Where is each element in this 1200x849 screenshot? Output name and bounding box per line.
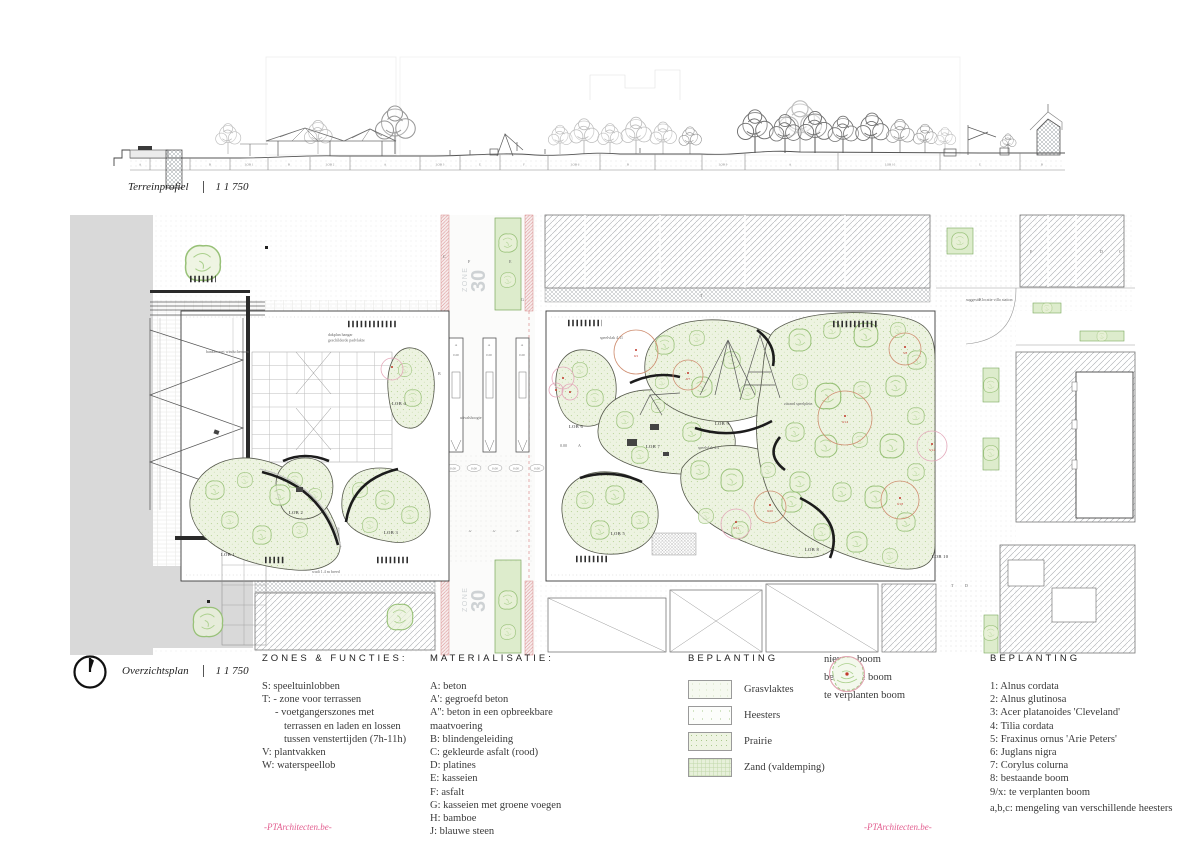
svg-text:dakplan hangar: dakplan hangar [328,332,353,337]
legend-item: H: bamboe [430,812,561,825]
svg-text:B: B [1041,163,1043,167]
legend-item: 2: Alnus glutinosa [990,693,1173,706]
svg-text:LOB 3: LOB 3 [436,163,445,167]
legend-item: terrassen en laden en lossen [262,720,407,733]
profile-title-text: Terreinprofiel [128,181,189,193]
legend-item: 9/x: te verplanten boom [990,786,1173,799]
svg-text:9/21: 9/21 [733,526,739,530]
legend-planting2-title: BEPLANTING [990,653,1173,664]
svg-text:0.00: 0.00 [486,353,492,357]
swatch-zand [688,758,732,777]
legend-item: D: platines [430,759,561,772]
legend-item: T: - zone voor terrassen [262,693,407,706]
svg-text:0.00: 0.00 [453,353,459,357]
svg-text:0.00: 0.00 [560,443,567,448]
legend-item: 7: Corylus colurna [990,759,1173,772]
legend-zones-title: ZONES & FUNCTIES: [262,653,407,664]
svg-text:LOB 9: LOB 9 [715,421,730,426]
architectural-sheet: A J B LOB 1 B LOB 2 A LOB 3 E F LOB 6 B … [0,0,1200,849]
legend-item: 8: bestaande boom [990,772,1173,785]
svg-text:A: A [578,443,581,448]
svg-text:0.00: 0.00 [492,467,498,471]
svg-text:30: 30 [468,270,490,292]
sand-area [652,533,696,555]
profile-building [1030,104,1062,155]
svg-text:banken met windschermen: banken met windschermen [206,349,249,354]
svg-text:9/18: 9/18 [897,502,903,506]
legend-planting-title: BEPLANTING [688,653,825,664]
profile-ground: A J B LOB 1 B LOB 2 A LOB 3 E F LOB 6 B … [114,146,1065,188]
svg-text:LOB 2: LOB 2 [289,510,304,515]
legend-item: S: speeltuinlobben [262,680,407,693]
swatch-label: Zand (valdemping) [744,761,825,774]
svg-text:LOB 9: LOB 9 [719,163,728,167]
legend-item: J: blauwe steen [430,825,561,838]
svg-text:0.00: 0.00 [450,467,456,471]
plan-title-text: Overzichtsplan [122,665,189,677]
legend-materials-title: MATERIALISATIE: [430,653,561,664]
svg-text:speelvlak 4.4: speelvlak 4.4 [698,445,719,450]
svg-text:F: F [523,163,525,167]
svg-text:0.00: 0.00 [534,467,540,471]
svg-text:0.00: 0.00 [513,467,519,471]
svg-text:LOB 3: LOB 3 [384,530,399,535]
legend-item: maatvoering [430,720,561,733]
svg-text:LOB 4: LOB 4 [392,401,407,406]
svg-text:E: E [979,163,981,167]
svg-text:5/14: 5/14 [929,448,935,452]
legend-item: 4: Tilia cordata [990,720,1173,733]
legend-item: A: beton [430,680,561,693]
legend-zones: ZONES & FUNCTIES: S: speeltuinlobben T: … [262,653,407,772]
svg-text:D: D [965,583,968,588]
svg-text:9/20: 9/20 [767,509,773,513]
legend-item: 6: Juglans nigra [990,746,1173,759]
grey-zone-left [70,215,153,655]
svg-text:A': A' [492,529,495,533]
svg-text:9/7: 9/7 [686,377,691,381]
svg-text:B: B [209,163,211,167]
legend-item: G: kasseien met groene voegen [430,799,561,812]
central-street: ZONE 30 ZONE 30 A A A 0.00 [440,215,544,655]
terrain-profile: A J B LOB 1 B LOB 2 A LOB 3 E F LOB 6 B … [114,57,1065,188]
legend-materials: MATERIALISATIE: A: beton A': gegroefd be… [430,653,561,838]
legend-item: 5: Fraxinus ornus 'Arie Peters' [990,733,1173,746]
svg-text:D: D [1100,249,1103,254]
legend-planting2: BEPLANTING 1: Alnus cordata 2: Alnus glu… [990,653,1173,815]
legend-item: B: blindengeleiding [430,733,561,746]
credit-left: -PTArchitecten.be- [264,822,332,832]
svg-text:wadi 1.4 m breed: wadi 1.4 m breed [312,569,340,574]
legend-item: W: waterspeellob [262,759,407,772]
legend-item: tussen venstertijden (7h-11h) [262,733,407,746]
swatch-label: Heesters [744,709,780,722]
svg-text:speelvlak 4.11: speelvlak 4.11 [600,335,623,340]
legend-tree-symbols: nieuwe boom bestaande boom te verplanten… [824,653,905,708]
swatch-heesters [688,706,732,725]
svg-text:9/2: 9/2 [634,354,639,358]
svg-text:LOB 5: LOB 5 [611,531,626,536]
svg-text:9/14: 9/14 [842,420,848,424]
legend-item: - voetgangerszones met [262,706,407,719]
svg-text:LOB 2: LOB 2 [326,163,335,167]
profile-scale: 1 1 750 [203,181,249,193]
profile-title: Terreinprofiel1 1 750 [128,181,249,193]
swatch-label: Prairie [744,735,772,748]
svg-text:B: B [438,371,441,376]
legend-item: A'': beton in een opbreekbare [430,706,561,719]
svg-text:A'': A'' [516,529,520,533]
svg-text:C: C [443,254,446,259]
relocate-tree-icon [824,653,870,695]
svg-text:suggestie locatie villo statio: suggestie locatie villo station [966,297,1013,302]
svg-text:uitvalshoogte: uitvalshoogte [460,415,482,420]
legend-item: C: gekleurde asfalt (rood) [430,746,561,759]
svg-text:LOB 7: LOB 7 [646,444,661,449]
svg-text:A': A' [468,529,471,533]
north-arrow-icon [70,652,112,694]
svg-text:LOB 6: LOB 6 [571,163,580,167]
svg-text:LOB 10: LOB 10 [932,554,949,559]
legend-item: 1: Alnus cordata [990,680,1173,693]
svg-text:LOB 10: LOB 10 [885,163,896,167]
overview-plan: ZONE 30 ZONE 30 A A A 0.00 [70,215,1135,655]
legend-item: V: plantvakken [262,746,407,759]
swatch-label: Grasvlaktes [744,683,794,696]
svg-text:LOB 6: LOB 6 [569,424,584,429]
plan-title: Overzichtsplan1 1 750 [122,665,249,677]
legend-item: F: asfalt [430,786,561,799]
legend-planting: BEPLANTING Grasvlaktes Heesters Prairie … [688,653,825,784]
svg-text:5/8: 5/8 [903,351,908,355]
svg-text:0.00: 0.00 [471,467,477,471]
svg-text:B: B [288,163,290,167]
svg-text:G: G [521,297,524,302]
svg-text:B: B [627,163,629,167]
profile-trees [216,101,1016,154]
legend-item: a,b,c: mengeling van verschillende heest… [990,802,1173,815]
svg-text:zitrand speelplein: zitrand speelplein [784,401,812,406]
svg-text:C: C [1119,249,1122,254]
svg-text:E: E [479,163,481,167]
svg-text:0.00: 0.00 [519,353,525,357]
svg-text:30: 30 [468,590,490,612]
svg-text:geschilderde padvlakte: geschilderde padvlakte [328,338,365,343]
legend-item: 3: Acer platanoides 'Cleveland' [990,706,1173,719]
svg-text:LOB 8: LOB 8 [805,547,820,552]
credit-right: -PTArchitecten.be- [864,822,932,832]
legend-item: A': gegroefd beton [430,693,561,706]
plan-scale: 1 1 750 [203,665,249,677]
legend-item: E: kasseien [430,772,561,785]
swatch-prairie [688,732,732,751]
swatch-grasvlaktes [688,680,732,699]
svg-text:LOB 1: LOB 1 [221,552,236,557]
svg-text:LOB 1: LOB 1 [245,163,254,167]
